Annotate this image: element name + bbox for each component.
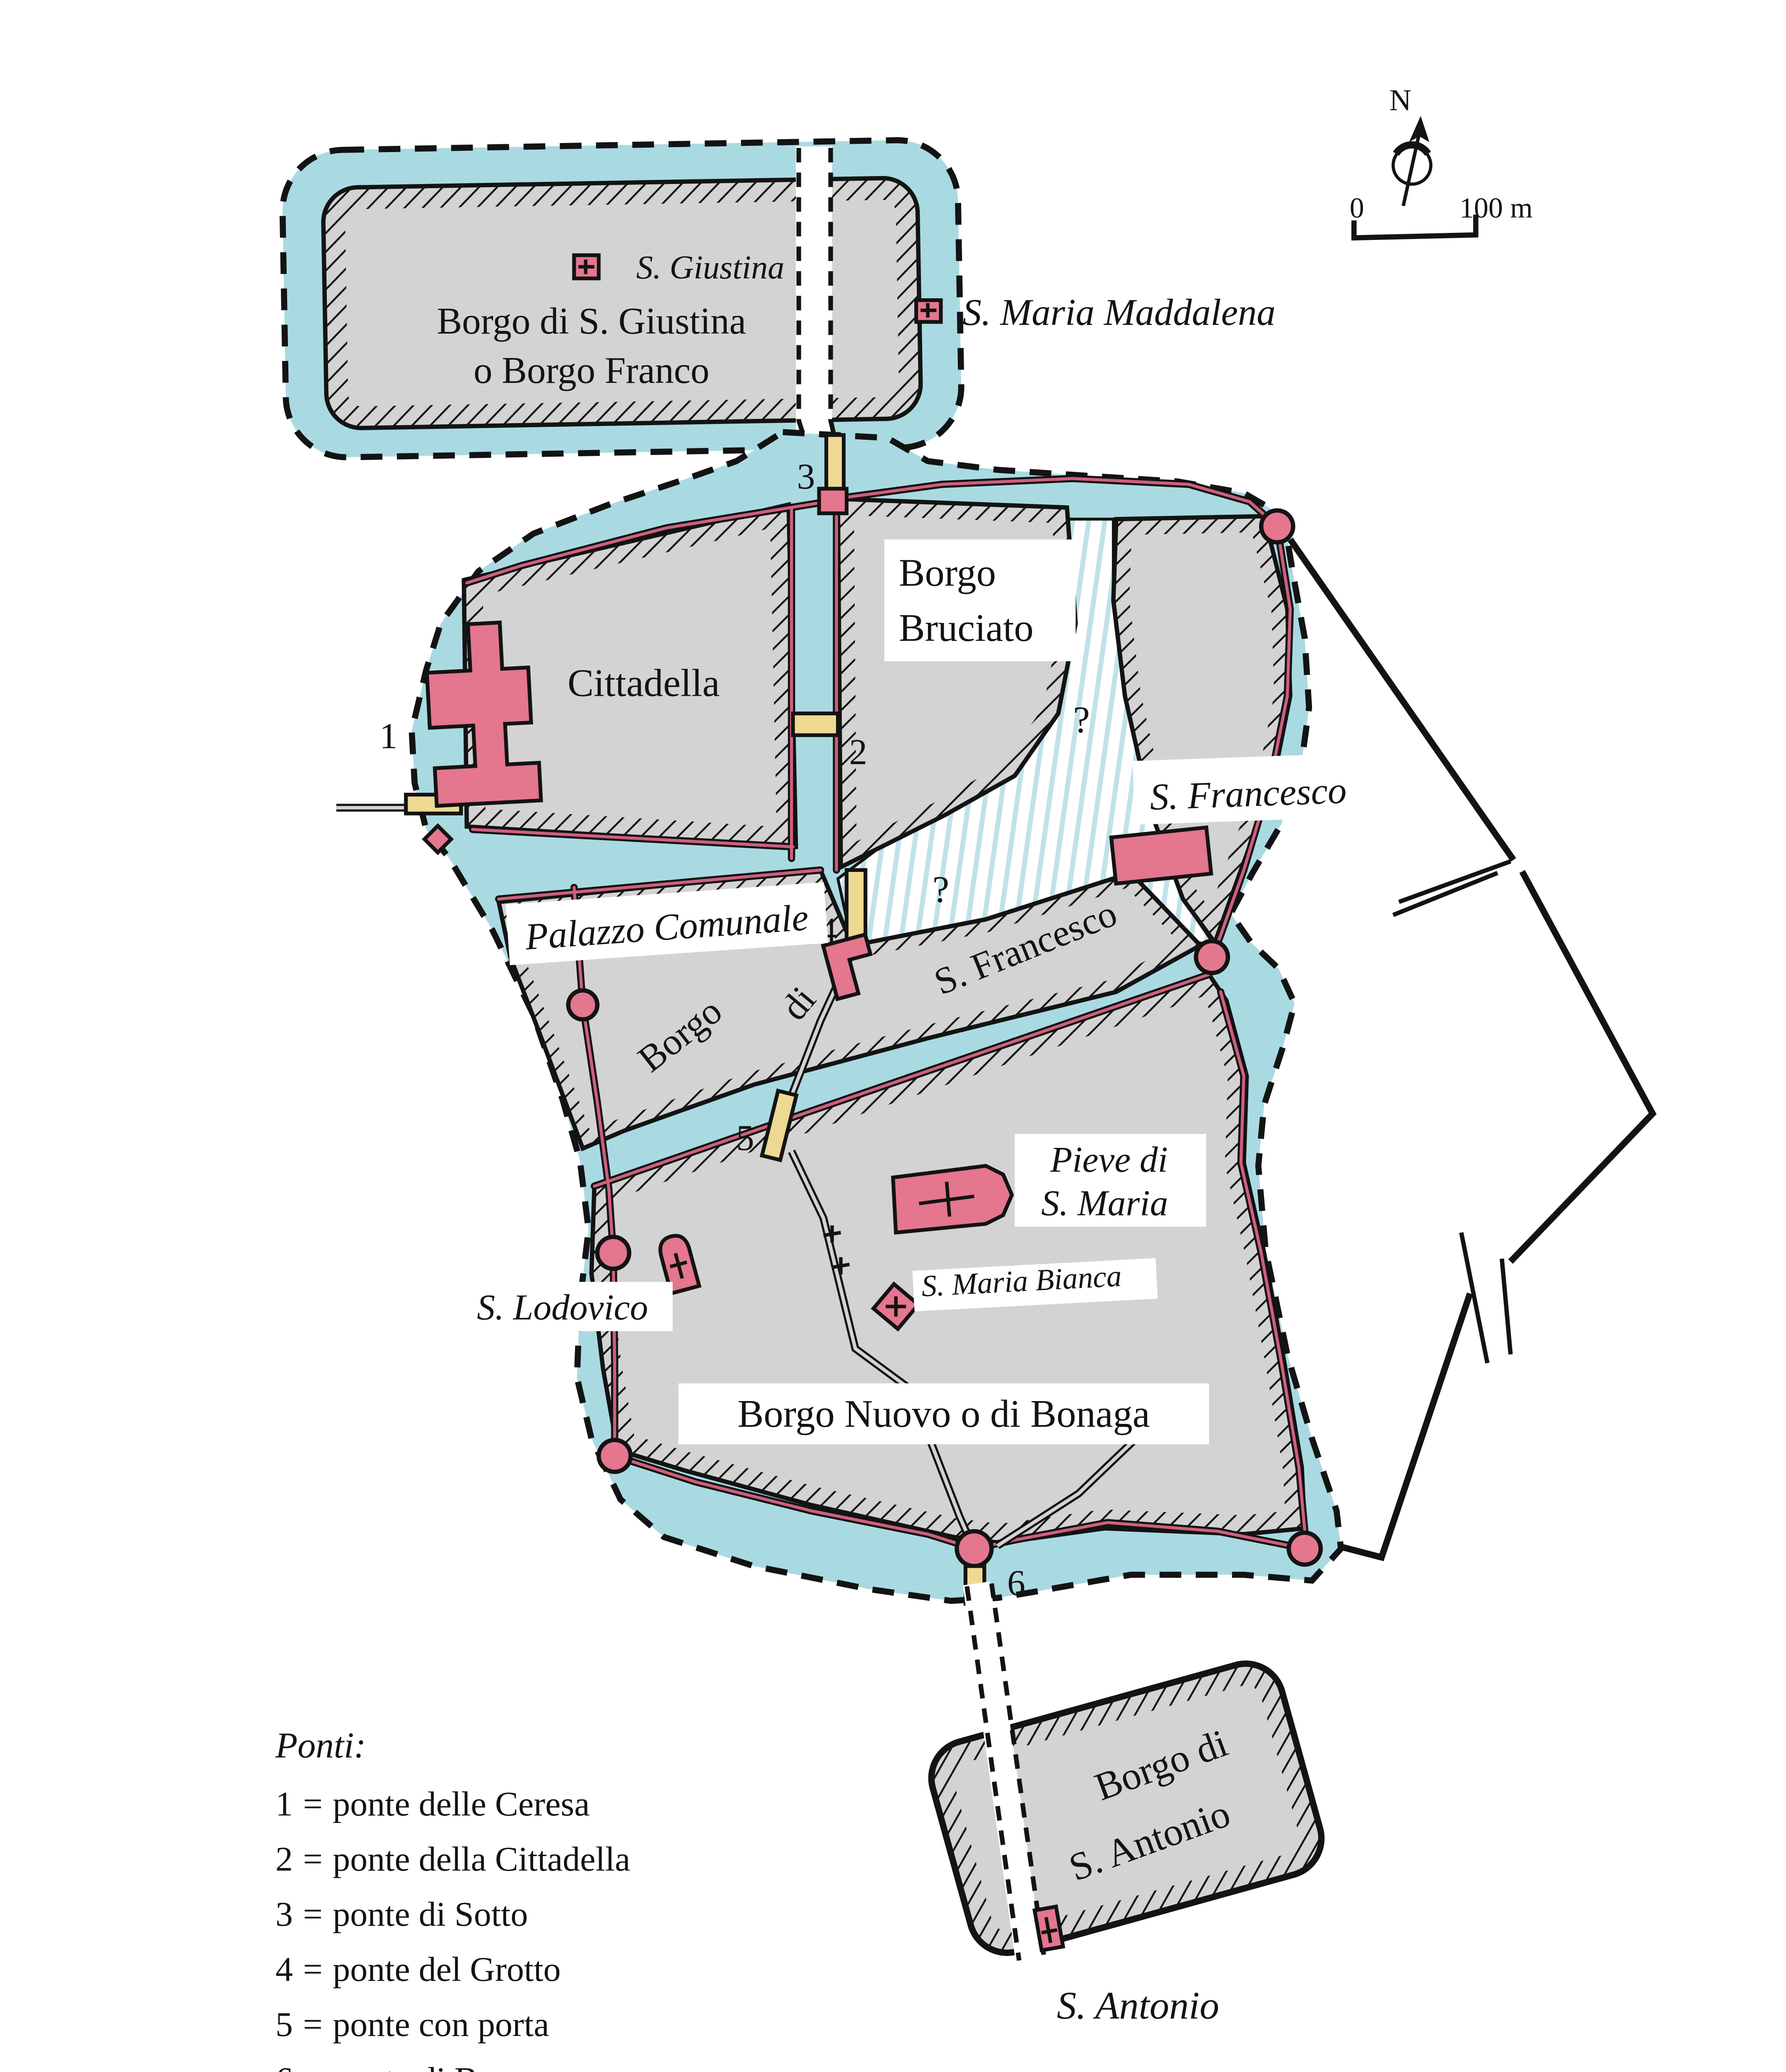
s-francesco-church [1111,828,1211,884]
label-pieve-2: S. Maria [1041,1183,1168,1223]
label-pieve-1: Pieve di [1050,1139,1168,1179]
bridge-number-3: 3 [797,456,815,496]
s-giustina-church-icon [574,255,599,278]
legend-item: 6=ponte di Bonaga [276,2060,561,2072]
question-mark-2: ? [933,868,949,910]
historical-map-mirandola: S. Giustina Borgo di S. Giustina o Borgo… [0,0,1786,2072]
gate-tower-3 [819,489,846,513]
bridge-3 [827,435,844,490]
label-borgo-giustina-1: Borgo di S. Giustina [437,300,746,342]
legend-item: 3=ponte di Sotto [276,1895,528,1934]
legend-item: 1=ponte delle Ceresa [276,1785,590,1823]
legend-item: 5=ponte con porta [276,2005,549,2044]
bridge-number-1: 1 [379,716,398,756]
label-s-giustina: S. Giustina [636,249,785,286]
legend-title: Ponti: [275,1725,366,1765]
s-maria-maddalena-church-icon [916,300,940,322]
label-borgo-bruciato-1: Borgo [899,552,996,595]
label-borgo-giustina-2: o Borgo Franco [474,349,709,391]
label-borgo-nuovo: Borgo Nuovo o di Bonaga [737,1392,1150,1435]
label-s-maria-maddalena: S. Maria Maddalena [962,291,1275,333]
legend-item: 4=ponte del Grotto [276,1950,561,1989]
label-s-antonio: S. Antonio [1057,1984,1219,2027]
compass-north-label: N [1390,83,1411,117]
label-s-francesco-church: S. Francesco [1149,769,1347,818]
road-north [796,146,832,451]
s-antonio-chapel [1034,1907,1063,1951]
bridge-2 [793,714,838,735]
label-cittadella: Cittadella [568,662,720,705]
bridge-number-2: 2 [849,732,868,772]
bridge-number-5: 5 [736,1118,754,1158]
question-mark-1: ? [1073,699,1090,741]
label-borgo-bruciato-2: Bruciato [899,607,1033,650]
scale-hundred: 100 m [1460,192,1533,224]
label-s-lodovico: S. Lodovico [477,1287,648,1327]
bridge-number-6: 6 [1007,1563,1025,1603]
scale-zero: 0 [1350,192,1364,224]
